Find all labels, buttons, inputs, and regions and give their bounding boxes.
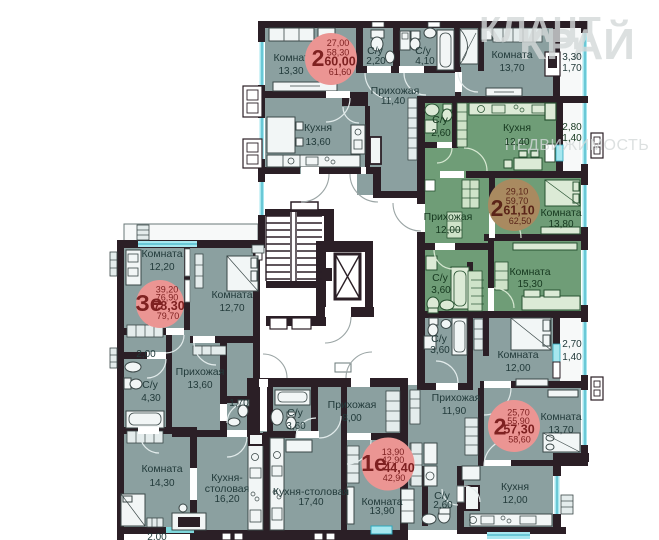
svg-text:2,20: 2,20 <box>366 56 386 67</box>
svg-text:2,80: 2,80 <box>562 122 582 133</box>
svg-text:15,30: 15,30 <box>517 279 542 290</box>
svg-text:Прихожая: Прихожая <box>176 366 225 378</box>
svg-text:Прихожая: Прихожая <box>328 399 377 411</box>
svg-text:17,40: 17,40 <box>298 497 323 508</box>
svg-text:12,00: 12,00 <box>505 363 530 374</box>
svg-text:13,30: 13,30 <box>278 66 303 77</box>
svg-text:3,60: 3,60 <box>430 345 450 356</box>
svg-text:12,70: 12,70 <box>219 303 244 314</box>
svg-text:12,00: 12,00 <box>435 225 460 236</box>
svg-text:Комната: Комната <box>509 266 550 278</box>
svg-text:1,40: 1,40 <box>562 352 582 363</box>
svg-text:3,60: 3,60 <box>286 421 306 432</box>
svg-text:Комната: Комната <box>540 411 581 423</box>
svg-text:Прихожая: Прихожая <box>432 392 481 404</box>
svg-text:2,00: 2,00 <box>147 532 167 540</box>
svg-text:2: 2 <box>491 195 504 221</box>
svg-text:11,90: 11,90 <box>442 406 467 417</box>
svg-text:58,60: 58,60 <box>508 435 531 445</box>
svg-text:Комната: Комната <box>141 248 182 260</box>
svg-text:13,60: 13,60 <box>187 380 212 391</box>
svg-text:42,90: 42,90 <box>383 473 406 483</box>
svg-text:2: 2 <box>312 45 325 71</box>
svg-text:2,70: 2,70 <box>562 339 582 350</box>
svg-text:С/у: С/у <box>142 379 159 391</box>
svg-text:13,90: 13,90 <box>369 506 394 517</box>
svg-text:79,70: 79,70 <box>157 311 180 321</box>
svg-text:С/у: С/у <box>431 333 448 345</box>
svg-text:С/у: С/у <box>432 272 449 284</box>
svg-text:1,40: 1,40 <box>562 133 582 144</box>
svg-text:1,70: 1,70 <box>229 398 249 409</box>
svg-text:16,20: 16,20 <box>214 494 239 505</box>
svg-text:12,00: 12,00 <box>502 495 527 506</box>
svg-text:27,00: 27,00 <box>327 38 350 48</box>
svg-text:4,30: 4,30 <box>141 393 161 404</box>
svg-text:3,60: 3,60 <box>431 285 451 296</box>
svg-text:Комната: Комната <box>211 289 252 301</box>
svg-text:13,60: 13,60 <box>305 137 330 148</box>
svg-text:Комната: Комната <box>540 207 581 219</box>
svg-text:11,40: 11,40 <box>381 96 406 107</box>
svg-text:С/у: С/у <box>432 114 449 126</box>
svg-text:Кухня: Кухня <box>503 122 531 134</box>
svg-text:4,10: 4,10 <box>415 56 435 67</box>
svg-text:Прихожая: Прихожая <box>424 211 473 223</box>
svg-text:Комната: Комната <box>497 349 538 361</box>
svg-text:12,40: 12,40 <box>504 137 529 148</box>
svg-text:29,10: 29,10 <box>506 187 529 197</box>
svg-text:Кухня: Кухня <box>501 481 529 493</box>
svg-text:2,60: 2,60 <box>431 128 451 139</box>
svg-text:13,70: 13,70 <box>499 63 524 74</box>
svg-text:14,30: 14,30 <box>149 478 174 489</box>
svg-text:62,50: 62,50 <box>509 216 532 226</box>
svg-text:61,60: 61,60 <box>329 67 352 77</box>
svg-text:Комната: Комната <box>491 49 532 61</box>
svg-text:С/у: С/у <box>287 407 304 419</box>
svg-text:2,00: 2,00 <box>136 349 156 360</box>
svg-text:2,60: 2,60 <box>433 500 453 511</box>
svg-text:3,30: 3,30 <box>562 52 582 63</box>
svg-text:Кухня: Кухня <box>304 122 332 134</box>
svg-text:8,00: 8,00 <box>342 413 362 424</box>
svg-text:Комната: Комната <box>141 463 182 475</box>
svg-text:1,70: 1,70 <box>562 63 582 74</box>
svg-text:13,70: 13,70 <box>548 425 573 436</box>
svg-text:13,80: 13,80 <box>548 219 573 230</box>
svg-text:12,20: 12,20 <box>149 262 174 273</box>
